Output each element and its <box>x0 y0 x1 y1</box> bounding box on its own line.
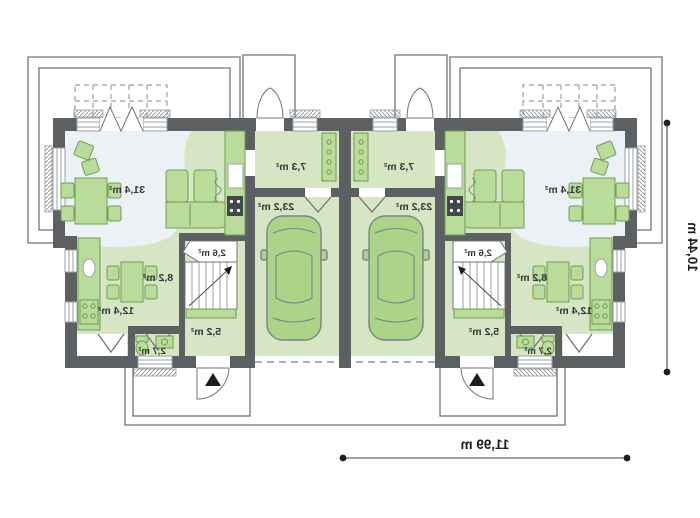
dimension-width-label: 11,99 m <box>461 437 510 452</box>
room-label-hall-left: 5,2 m² <box>190 326 221 338</box>
room-label-room-left: 12,4 m² <box>97 305 134 317</box>
room-label-kitchen-right: 8,2 m² <box>516 272 547 284</box>
dimension-depth-label: 10,44 m <box>685 222 700 272</box>
room-label-room-right: 12,4 m² <box>555 305 592 317</box>
floor-plan-page: 31,4 m² 7,3 m² 23,2 m² 2,6 m² 8,2 m² 12,… <box>0 0 700 518</box>
room-label-hall-right: 5,2 m² <box>468 326 499 338</box>
room-label-vestibule-left: 7,3 m² <box>275 161 306 173</box>
room-label-wc-right: 2,7 m² <box>524 346 551 357</box>
floor-plan-canvas: 31,4 m² 7,3 m² 23,2 m² 2,6 m² 8,2 m² 12,… <box>0 0 700 518</box>
room-label-living-right: 31,4 m² <box>544 184 581 196</box>
room-label-storage-right: 2,6 m² <box>464 248 491 259</box>
unit-left <box>28 55 351 416</box>
room-label-wc-left: 2,7 m² <box>138 346 165 357</box>
room-label-garage-left: 23,2 m² <box>257 201 294 213</box>
room-label-kitchen-left: 8,2 m² <box>142 272 173 284</box>
room-label-garage-right: 23,2 m² <box>395 201 432 213</box>
room-label-storage-left: 2,6 m² <box>198 248 225 259</box>
room-label-vestibule-right: 7,3 m² <box>383 161 414 173</box>
room-label-living-left: 31,4 m² <box>108 184 145 196</box>
dimension-width <box>340 455 631 462</box>
unit-right <box>339 55 662 416</box>
dimension-depth <box>664 120 671 376</box>
